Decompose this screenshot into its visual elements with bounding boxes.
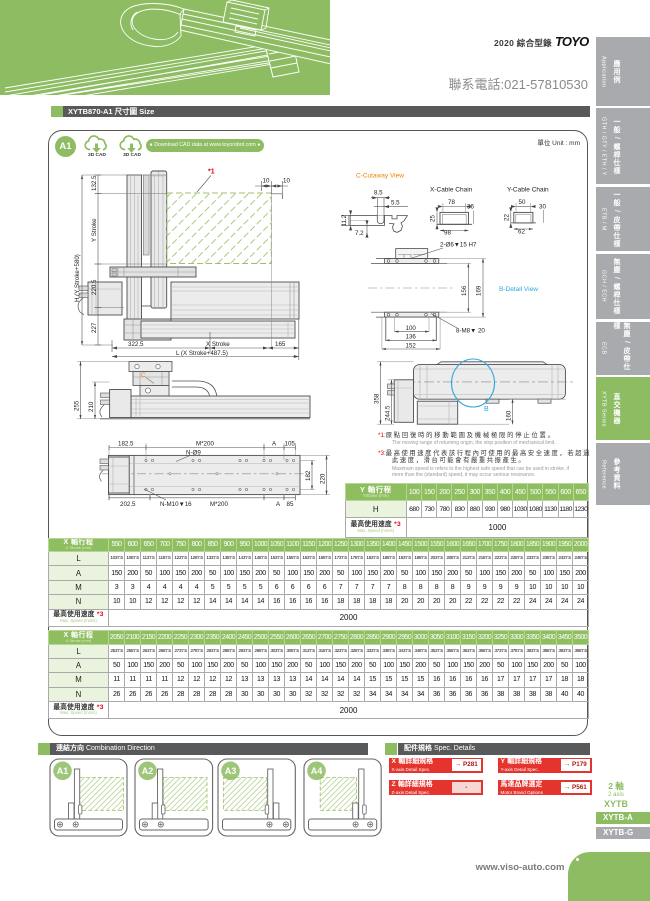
svg-text:152: 152 [406,342,417,349]
svg-text:98: 98 [444,230,451,237]
svg-text:X-Cable Chain: X-Cable Chain [430,187,473,194]
svg-text:210: 210 [88,401,95,412]
svg-text:A3: A3 [225,766,237,776]
svg-text:227: 227 [91,322,98,333]
svg-text:8.5: 8.5 [374,190,383,197]
svg-text:10: 10 [263,178,270,185]
svg-text:A2: A2 [142,766,154,776]
svg-text:50: 50 [519,199,526,206]
svg-text:M*200: M*200 [210,501,228,508]
svg-text:182: 182 [305,470,312,481]
svg-text:11.2: 11.2 [341,214,348,226]
svg-text:X Stroke: X Stroke [206,341,230,348]
svg-text:A: A [272,441,277,448]
svg-text:*1: *1 [208,169,215,176]
svg-text:255: 255 [74,400,81,411]
svg-text:165: 165 [275,341,286,348]
svg-text:220.5: 220.5 [91,279,98,295]
svg-text:B: B [484,406,489,413]
svg-text:36: 36 [467,204,474,211]
svg-text:25: 25 [430,215,437,222]
svg-text:H (Y Stroke+580): H (Y Stroke+580) [74,254,81,302]
svg-text:8-M8▼ 20: 8-M8▼ 20 [456,328,485,335]
svg-text:L (X Stroke+487.5): L (X Stroke+487.5) [176,350,228,357]
svg-text:5.5: 5.5 [391,200,400,207]
svg-text:2-Ø6▼15 H7: 2-Ø6▼15 H7 [440,242,477,249]
svg-text:M*200: M*200 [196,441,214,448]
svg-text:10: 10 [283,178,290,185]
svg-text:78: 78 [448,199,455,206]
svg-text:C-Cutaway View: C-Cutaway View [356,173,404,180]
svg-text:132.5: 132.5 [91,175,98,191]
svg-text:B-Detail View: B-Detail View [499,286,538,293]
svg-text:A: A [276,501,281,508]
svg-text:Y Stroke: Y Stroke [91,218,98,242]
svg-text:22: 22 [504,214,511,221]
svg-text:7.2: 7.2 [355,230,364,237]
svg-text:202.5: 202.5 [120,501,136,508]
svg-text:A4: A4 [311,766,323,776]
svg-text:100: 100 [406,325,417,332]
svg-text:169: 169 [476,285,483,296]
svg-text:30: 30 [539,204,546,211]
svg-text:358: 358 [374,393,381,404]
svg-text:322.5: 322.5 [128,341,144,348]
svg-text:62: 62 [518,229,525,236]
svg-text:Y-Cable Chain: Y-Cable Chain [507,187,549,194]
svg-text:N-M10▼16: N-M10▼16 [160,501,192,508]
svg-text:105: 105 [285,441,296,448]
svg-text:182.5: 182.5 [118,441,134,448]
svg-text:156: 156 [461,285,468,296]
svg-text:136: 136 [406,334,417,341]
svg-text:C: C [141,372,146,379]
svg-text:160: 160 [506,410,513,421]
svg-text:244.5: 244.5 [385,405,392,421]
svg-text:220: 220 [320,473,327,484]
svg-text:A1: A1 [57,766,69,776]
svg-text:85: 85 [287,501,294,508]
svg-text:N-Ø9: N-Ø9 [186,450,201,457]
